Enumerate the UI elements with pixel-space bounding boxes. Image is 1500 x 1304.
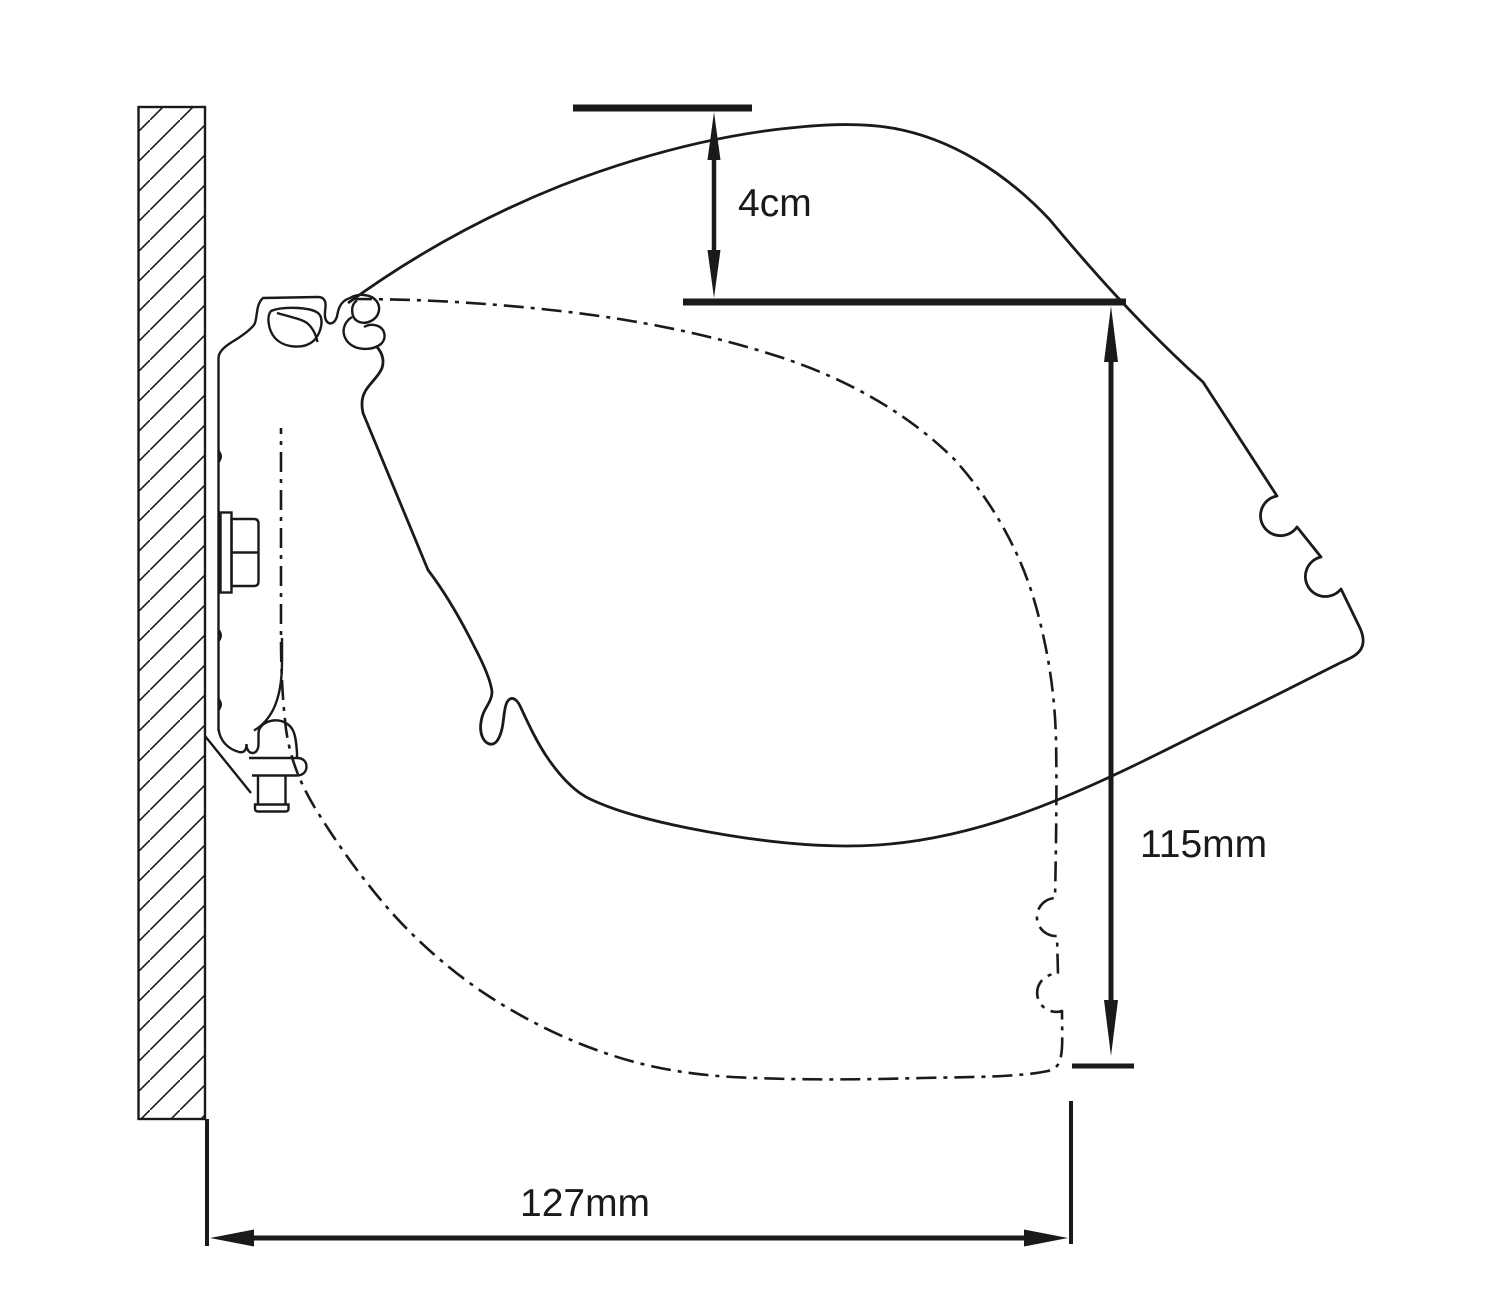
dim-height-label: 115mm	[1140, 823, 1267, 866]
bottom-screw-body	[258, 776, 286, 805]
cassette-open-profile	[281, 299, 1062, 1079]
bolt-washer	[221, 513, 232, 593]
dim-drop-arrowhead-up	[708, 112, 721, 160]
mounting-bracket	[205, 295, 385, 812]
bracket-foot-brace	[205, 736, 251, 793]
wall-section	[139, 107, 206, 1119]
bracket-inner-profile	[254, 638, 282, 731]
bracket-chamber-web	[277, 313, 318, 342]
dim-projection-arrowhead-left	[210, 1230, 254, 1247]
dim-projection-arrowhead-right	[1024, 1230, 1068, 1247]
technical-drawing-page: 4cm 115mm 127mm	[0, 0, 1500, 1304]
cassette-bracket-cross-section: 4cm 115mm 127mm	[0, 0, 1500, 1304]
dim-drop-arrowhead-down	[708, 250, 721, 298]
cassette-closed-profile	[348, 125, 1363, 846]
dim-projection-label: 127mm	[520, 1182, 650, 1225]
dimension-drop-4cm: 4cm	[573, 108, 812, 298]
bottom-screw-tip	[255, 805, 289, 812]
dim-height-arrowhead-down	[1104, 1000, 1118, 1056]
dim-drop-label: 4cm	[738, 182, 812, 225]
bracket-bolt	[221, 513, 259, 593]
wall-hatched-body	[139, 107, 206, 1119]
bracket-chamber	[268, 308, 321, 347]
dimension-projection-127mm: 127mm	[207, 1101, 1071, 1247]
dimension-height-115mm: 115mm	[683, 302, 1267, 1066]
dim-height-arrowhead-up	[1104, 306, 1118, 362]
bracket-spine-and-top-plate	[219, 295, 380, 731]
